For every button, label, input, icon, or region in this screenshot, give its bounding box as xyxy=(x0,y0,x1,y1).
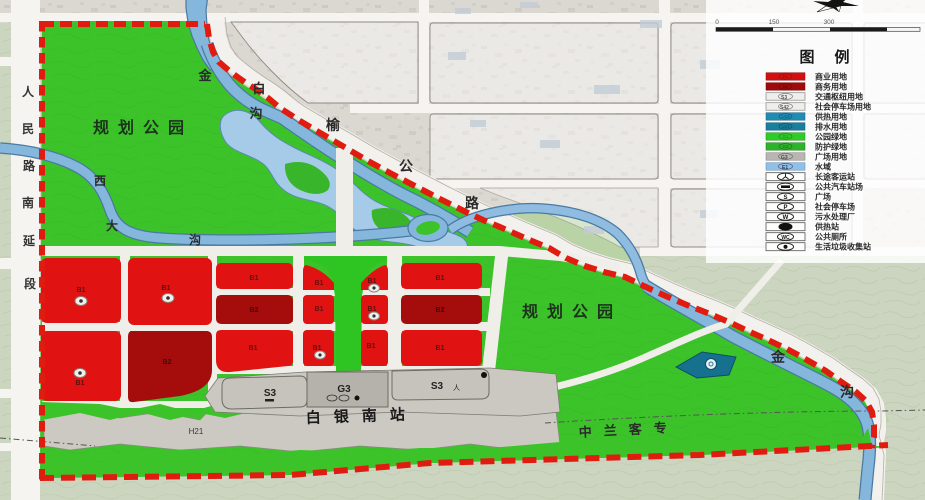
svg-text:交通枢纽用地: 交通枢纽用地 xyxy=(815,92,863,102)
svg-text:0: 0 xyxy=(715,19,719,26)
svg-text:P: P xyxy=(783,205,787,211)
svg-text:B2: B2 xyxy=(163,359,172,366)
svg-text:西: 西 xyxy=(94,174,106,188)
svg-text:S3: S3 xyxy=(264,388,277,399)
svg-text:民: 民 xyxy=(22,122,34,136)
svg-text:S42: S42 xyxy=(780,105,789,111)
svg-text:沟: 沟 xyxy=(189,232,201,247)
svg-text:G2: G2 xyxy=(782,144,789,149)
svg-text:S3: S3 xyxy=(781,95,787,101)
svg-text:B1: B1 xyxy=(313,345,322,352)
svg-text:公园绿地: 公园绿地 xyxy=(815,132,847,142)
svg-text:人: 人 xyxy=(453,384,460,392)
svg-text:延: 延 xyxy=(22,233,36,248)
svg-text:图: 图 xyxy=(799,49,814,66)
svg-text:长途客运站: 长途客运站 xyxy=(815,172,855,182)
svg-text:B1: B1 xyxy=(250,275,259,282)
svg-text:商务用地: 商务用地 xyxy=(815,82,847,92)
svg-text:B1: B1 xyxy=(77,287,86,294)
svg-text:例: 例 xyxy=(834,48,849,66)
svg-text:公共汽车站场: 公共汽车站场 xyxy=(815,182,863,192)
svg-text:规划公园: 规划公园 xyxy=(522,302,622,321)
svg-text:B1: B1 xyxy=(783,74,789,79)
svg-text:路: 路 xyxy=(23,158,36,173)
svg-text:B1: B1 xyxy=(315,280,324,287)
svg-text:社会停车场用地: 社会停车场用地 xyxy=(814,102,871,112)
svg-text:路: 路 xyxy=(465,195,480,211)
svg-text:U21: U21 xyxy=(781,124,790,129)
svg-text:B2: B2 xyxy=(250,307,259,314)
svg-text:沟: 沟 xyxy=(249,106,262,121)
svg-text:B2: B2 xyxy=(783,84,789,89)
svg-text:供热用地: 供热用地 xyxy=(814,112,847,122)
svg-text:B2: B2 xyxy=(436,307,445,314)
svg-text:S3: S3 xyxy=(431,381,444,392)
svg-text:南: 南 xyxy=(22,195,34,210)
svg-text:人: 人 xyxy=(22,84,35,99)
svg-text:U15: U15 xyxy=(781,114,790,119)
svg-text:水域: 水域 xyxy=(814,162,831,172)
svg-text:300: 300 xyxy=(824,19,835,26)
svg-text:W: W xyxy=(783,215,789,221)
svg-text:广场用地: 广场用地 xyxy=(815,152,847,162)
svg-text:E1: E1 xyxy=(782,165,788,171)
svg-text:防护绿地: 防护绿地 xyxy=(815,142,847,152)
svg-text:白: 白 xyxy=(252,81,265,96)
svg-text:供热站: 供热站 xyxy=(814,222,839,232)
svg-text:G3: G3 xyxy=(781,155,788,161)
svg-text:公: 公 xyxy=(399,158,413,174)
svg-text:榆: 榆 xyxy=(326,117,341,133)
svg-text:商业用地: 商业用地 xyxy=(815,72,847,82)
svg-text:B1: B1 xyxy=(76,380,85,387)
svg-text:B1: B1 xyxy=(368,278,377,285)
svg-text:B1: B1 xyxy=(436,345,445,352)
svg-text:B1: B1 xyxy=(162,285,171,292)
svg-text:规划公园: 规划公园 xyxy=(93,118,193,137)
svg-text:G3: G3 xyxy=(337,384,351,395)
svg-text:B1: B1 xyxy=(436,275,445,282)
svg-text:H21: H21 xyxy=(189,427,204,436)
svg-text:B1: B1 xyxy=(249,345,258,352)
svg-text:WC: WC xyxy=(781,235,790,241)
svg-text:大: 大 xyxy=(106,218,118,233)
svg-text:B1: B1 xyxy=(368,306,377,313)
svg-text:污水处理厂: 污水处理厂 xyxy=(815,212,855,222)
svg-text:B1: B1 xyxy=(367,343,376,350)
svg-text:公共厕所: 公共厕所 xyxy=(815,232,847,242)
svg-text:S: S xyxy=(783,195,787,201)
svg-text:生活垃圾收集站: 生活垃圾收集站 xyxy=(815,242,871,252)
svg-text:排水用地: 排水用地 xyxy=(815,122,847,132)
svg-text:金: 金 xyxy=(770,349,786,365)
svg-text:G1: G1 xyxy=(782,134,789,139)
svg-text:金: 金 xyxy=(197,68,212,83)
svg-text:B1: B1 xyxy=(315,306,324,313)
svg-text:150: 150 xyxy=(769,19,780,26)
svg-text:社会停车场: 社会停车场 xyxy=(814,202,855,212)
svg-text:广场: 广场 xyxy=(815,192,831,202)
svg-text:段: 段 xyxy=(24,276,37,291)
svg-text:沟: 沟 xyxy=(840,384,854,400)
